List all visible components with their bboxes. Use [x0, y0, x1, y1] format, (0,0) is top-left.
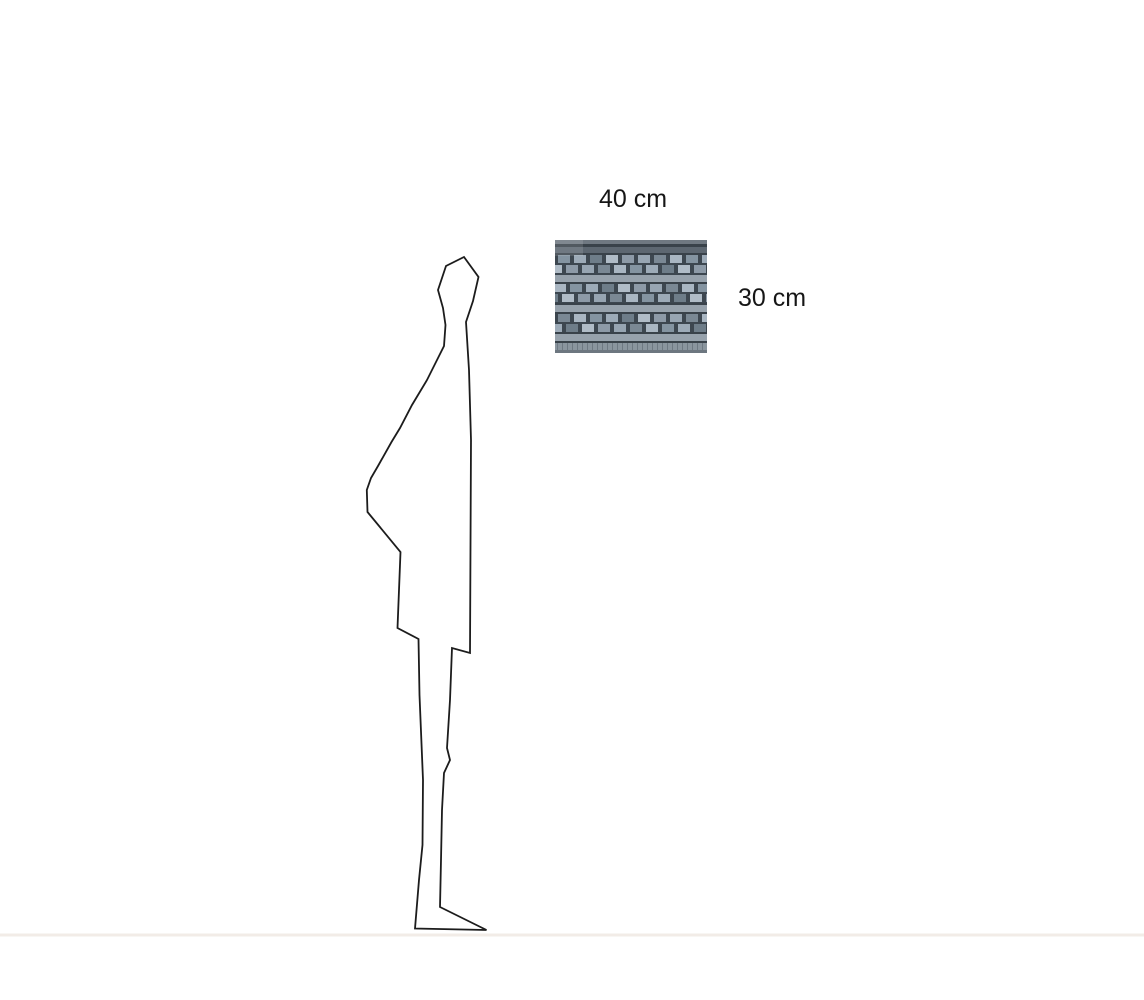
- person-outline-svg: [0, 0, 1144, 1000]
- width-dimension-label: 40 cm: [599, 187, 667, 212]
- person-outline-path: [367, 257, 487, 930]
- size-comparison-diagram: 40 cm 30 cm: [0, 0, 1144, 1000]
- texture-swatch: [555, 240, 707, 353]
- texture-swatch-svg: [555, 240, 707, 353]
- height-dimension-label: 30 cm: [738, 286, 806, 311]
